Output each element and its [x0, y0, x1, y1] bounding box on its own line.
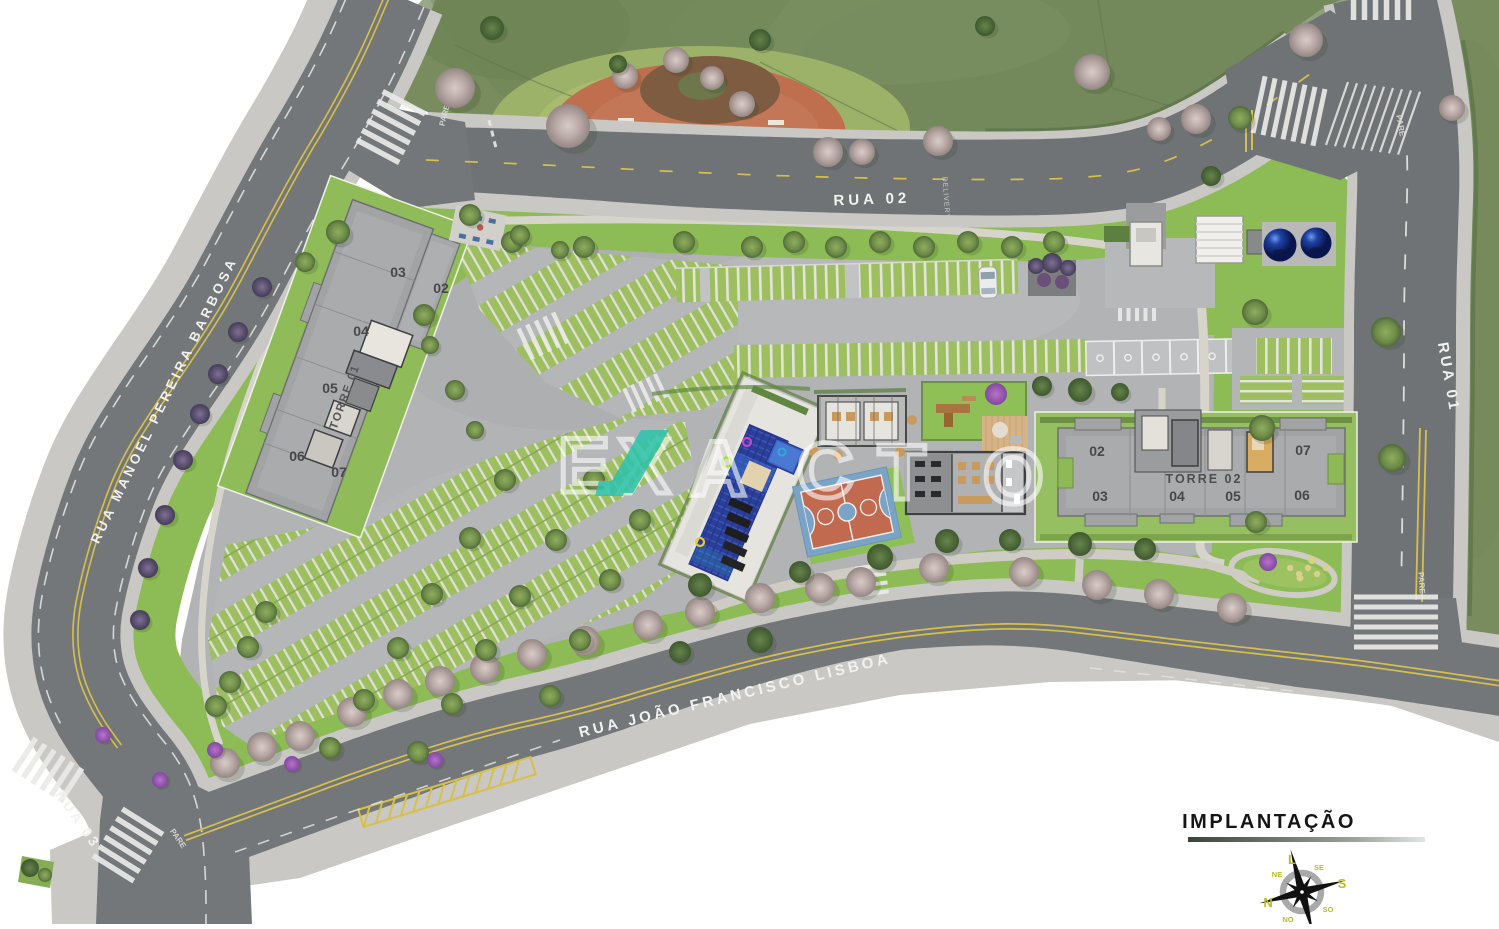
svg-text:07: 07: [331, 464, 347, 480]
svg-text:05: 05: [322, 380, 338, 396]
svg-text:07: 07: [1295, 442, 1311, 458]
svg-text:02: 02: [1089, 443, 1105, 459]
svg-text:A: A: [690, 424, 746, 512]
svg-text:T: T: [878, 428, 926, 516]
svg-text:03: 03: [390, 264, 406, 280]
svg-text:05: 05: [1225, 488, 1241, 504]
svg-text:C: C: [797, 426, 853, 514]
svg-text:06: 06: [289, 448, 305, 464]
svg-text:06: 06: [1294, 487, 1310, 503]
svg-text:04: 04: [1169, 488, 1185, 504]
svg-text:S: S: [1338, 876, 1347, 891]
svg-text:N: N: [1263, 895, 1272, 910]
svg-text:SE: SE: [1314, 863, 1324, 872]
svg-text:TORRE 02: TORRE 02: [1166, 472, 1243, 486]
svg-text:03: 03: [1092, 488, 1108, 504]
svg-text:O: O: [983, 432, 1044, 520]
svg-text:NE: NE: [1272, 870, 1282, 879]
svg-text:NO: NO: [1282, 915, 1293, 924]
svg-text:RUA 02: RUA 02: [833, 190, 910, 210]
svg-text:L: L: [1288, 852, 1296, 867]
svg-text:02: 02: [433, 280, 449, 296]
svg-text:PARE: PARE: [1416, 572, 1427, 595]
svg-text:IMPLANTAÇÃO: IMPLANTAÇÃO: [1182, 810, 1356, 833]
svg-text:SO: SO: [1323, 905, 1334, 914]
svg-text:04: 04: [353, 323, 369, 339]
